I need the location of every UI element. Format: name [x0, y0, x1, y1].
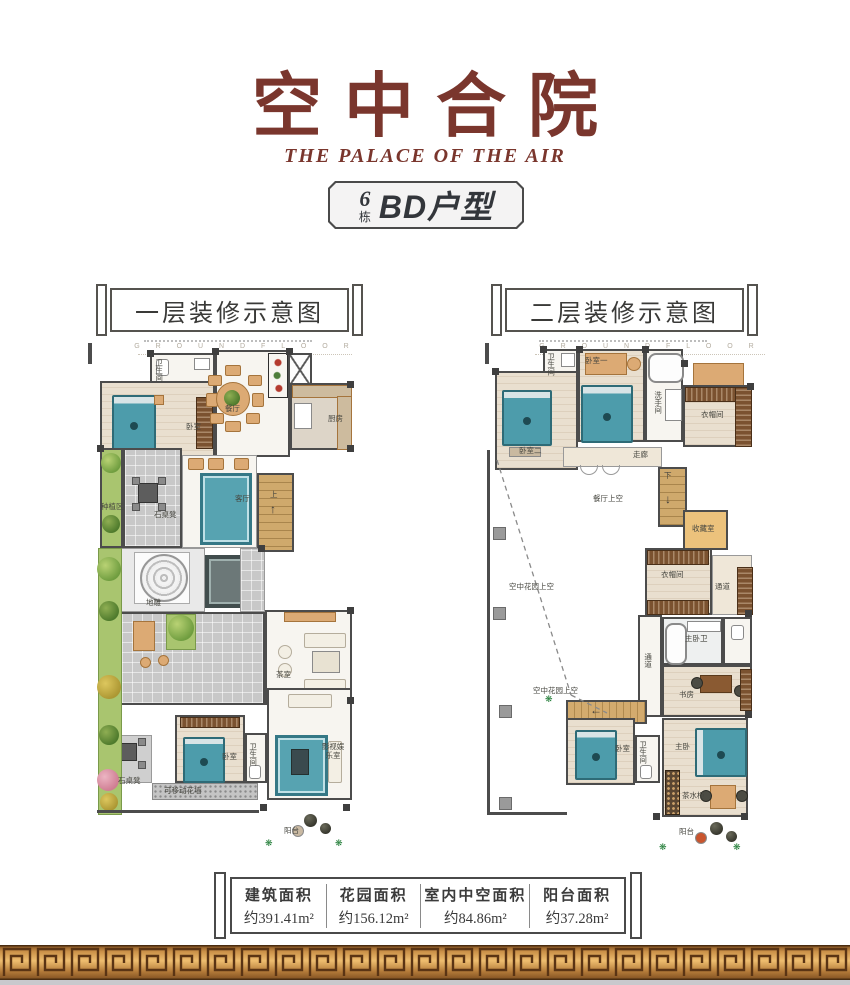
- plant-star: ❋: [733, 843, 741, 852]
- dining-chair: [246, 413, 260, 424]
- floor2-plan: G R O U N D F L O O R ↓: [485, 345, 815, 857]
- floor2-panel-label: 二层装修示意图: [505, 288, 744, 332]
- wall-pillar: [147, 350, 154, 357]
- kitchen-island: [294, 403, 312, 429]
- tea-table: [312, 651, 340, 673]
- nightstand: [154, 395, 164, 405]
- stone-stool: [132, 503, 140, 511]
- room-label: 卫生间: [154, 359, 163, 382]
- courtyard-stool: [140, 657, 151, 668]
- room-label: 茶水柜: [682, 792, 705, 801]
- room-label: 餐厅上空: [593, 495, 623, 504]
- dining-chair: [210, 413, 224, 424]
- area-label: 室内中空面积: [424, 884, 526, 905]
- poster-page: 空中合院 THE PALACE OF THE AIR 6 栋 BD户型 一层装修…: [0, 0, 850, 985]
- room-label: 空中花园上空: [509, 583, 554, 592]
- room-label: 客厅: [235, 495, 250, 504]
- media-sofa: [288, 694, 332, 708]
- plant-star: ❋: [335, 839, 343, 848]
- room-label: 阳台: [284, 827, 299, 836]
- area-label: 建筑面积: [245, 884, 313, 905]
- courtyard-table: [133, 621, 155, 651]
- plant-star: ❋: [545, 695, 553, 704]
- stone-stool: [138, 738, 146, 746]
- unit-badge: 6 栋 BD户型: [328, 181, 524, 229]
- dining-chair: [208, 375, 222, 386]
- building-number-value: 6: [359, 188, 370, 210]
- room-label: 地雕: [146, 599, 161, 608]
- deck-arrow: ←: [590, 704, 602, 716]
- room-label: 卧室二: [519, 447, 542, 456]
- tile-path: [240, 548, 265, 612]
- sink: [194, 358, 210, 370]
- area-value: 约391.41m²: [244, 907, 314, 928]
- stone-table: [138, 483, 158, 503]
- room-label: 通道: [643, 653, 652, 668]
- room-label: 餐厅: [225, 405, 240, 414]
- room-label: 种植区: [101, 503, 124, 512]
- floor2-label-left-bar: [491, 284, 502, 336]
- dining-chair: [225, 365, 241, 376]
- area-info-box: 建筑面积 约391.41m² 花园面积 约156.12m² 室内中空面积 约84…: [230, 877, 626, 934]
- page-subtitle: THE PALACE OF THE AIR: [0, 145, 850, 168]
- bed: [112, 395, 156, 452]
- building-number: 6 栋: [359, 188, 371, 223]
- room-label: 走廊: [633, 451, 648, 460]
- room-label: 石桌凳: [118, 777, 141, 786]
- tea-sofa: [304, 633, 346, 648]
- room-label: 阳台: [679, 828, 694, 837]
- tree: [101, 453, 121, 473]
- tree: [102, 515, 120, 533]
- armchair: [188, 458, 204, 470]
- room-label: 卧室: [186, 423, 201, 432]
- room-label: 衣帽间: [701, 411, 724, 420]
- room-label: 空中花园上空: [533, 687, 578, 696]
- info-right-bar: [630, 872, 642, 939]
- balcony-pot: [320, 823, 331, 834]
- dining-chair: [252, 393, 264, 407]
- plant-star: ❋: [265, 839, 273, 848]
- tree: [97, 675, 121, 699]
- media-table: [291, 749, 309, 775]
- tree: [100, 793, 118, 811]
- tea-armchair: [278, 645, 292, 659]
- shaft: [288, 353, 312, 387]
- area-cell-balcony: 阳台面积 约37.28m²: [529, 884, 624, 928]
- greek-key-border: [0, 945, 850, 980]
- room-label: 石桌凳: [154, 511, 177, 520]
- wall-pillar: [260, 804, 267, 811]
- room-label: 影视娱乐室: [320, 743, 346, 760]
- outer-wall-bottom: [97, 810, 259, 813]
- ground-carving-medallion: [140, 554, 188, 602]
- wall-pillar: [347, 607, 354, 614]
- room-label: 洗手间: [653, 391, 662, 414]
- armchair: [234, 458, 249, 470]
- tree: [99, 601, 119, 621]
- stone-stool: [132, 477, 140, 485]
- stairs-up-arrow: ↑: [270, 503, 276, 515]
- armchair: [208, 458, 224, 470]
- stone-stool: [158, 477, 166, 485]
- stairs-down-arrow: ↓: [665, 493, 671, 505]
- area-label: 花园面积: [340, 884, 408, 905]
- floor2-label-dotline: [539, 340, 707, 342]
- floor1-label-left-bar: [96, 284, 107, 336]
- area-value: 约156.12m²: [339, 907, 409, 928]
- floor1-label-dotline: [144, 340, 312, 342]
- room-label: 通道: [715, 583, 730, 592]
- room-label: 衣帽间: [661, 571, 684, 580]
- room-label: 主卧卫: [685, 635, 708, 644]
- tree: [99, 725, 119, 745]
- plant-star: ❋: [659, 843, 667, 852]
- flower-planter: [268, 353, 288, 398]
- tree: [97, 557, 121, 581]
- toilet: [249, 765, 261, 779]
- stone-stool: [138, 761, 146, 769]
- area-cell-garden: 花园面积 约156.12m²: [326, 884, 421, 928]
- greek-key-pattern: [0, 945, 850, 980]
- flower-tree: [97, 769, 119, 791]
- bed: [183, 737, 225, 783]
- area-value: 约84.86m²: [444, 907, 507, 928]
- wall-pillar: [97, 445, 104, 452]
- area-cell-building: 建筑面积 约391.41m²: [232, 884, 326, 928]
- living-rug: [200, 473, 252, 545]
- void-dashed-lines: [485, 345, 815, 857]
- unit-badge-inner: 6 栋 BD户型: [330, 183, 522, 227]
- floor1-label-right-bar: [352, 284, 363, 336]
- wall-pillar: [343, 804, 350, 811]
- courtyard-stool: [158, 655, 169, 666]
- wall-pillar: [347, 445, 354, 452]
- room-label: 下: [664, 472, 672, 481]
- info-left-bar: [214, 872, 226, 939]
- wall-pillar: [347, 697, 354, 704]
- tea-cabinet: [284, 612, 336, 622]
- building-number-unit: 栋: [359, 211, 371, 223]
- room-label: 卧室: [615, 745, 630, 754]
- wardrobe: [180, 717, 240, 728]
- room-label: 卫生间: [638, 741, 647, 764]
- room-label: 茶室: [276, 671, 291, 680]
- area-cell-void: 室内中空面积 约84.86m²: [420, 884, 529, 928]
- room-label: 卫生间: [546, 353, 555, 376]
- dining-chair: [225, 421, 241, 432]
- room-label: 书房: [679, 691, 694, 700]
- wall-pillar: [347, 381, 354, 388]
- floor1-panel-label: 一层装修示意图: [110, 288, 349, 332]
- room-label: 卧室: [222, 753, 237, 762]
- area-value: 约37.28m²: [546, 907, 609, 928]
- room-label: 收藏室: [692, 525, 715, 534]
- room-label: 可移动花墙: [164, 787, 202, 796]
- room-label: 厨房: [328, 415, 343, 424]
- floor1-watermark: G R O U N D F L O O R: [88, 343, 402, 350]
- room-label: 上: [270, 491, 278, 500]
- area-label: 阳台面积: [543, 884, 611, 905]
- bottom-gray-strip: [0, 980, 850, 985]
- wall-pillar: [258, 545, 265, 552]
- page-title: 空中合院: [0, 50, 850, 151]
- room-label: 卧室一: [585, 357, 608, 366]
- tree: [168, 615, 194, 641]
- room-label: 卫生间: [248, 743, 257, 766]
- floor2-label-right-bar: [747, 284, 758, 336]
- unit-type-label: BD户型: [379, 182, 493, 228]
- room-label: 主卧: [675, 743, 690, 752]
- wall-pillar: [286, 348, 293, 355]
- floor1-plan: G R O U N D F L O O R: [88, 345, 402, 857]
- balcony-pot: [304, 814, 317, 827]
- dining-chair: [248, 375, 262, 386]
- wall-pillar: [212, 348, 219, 355]
